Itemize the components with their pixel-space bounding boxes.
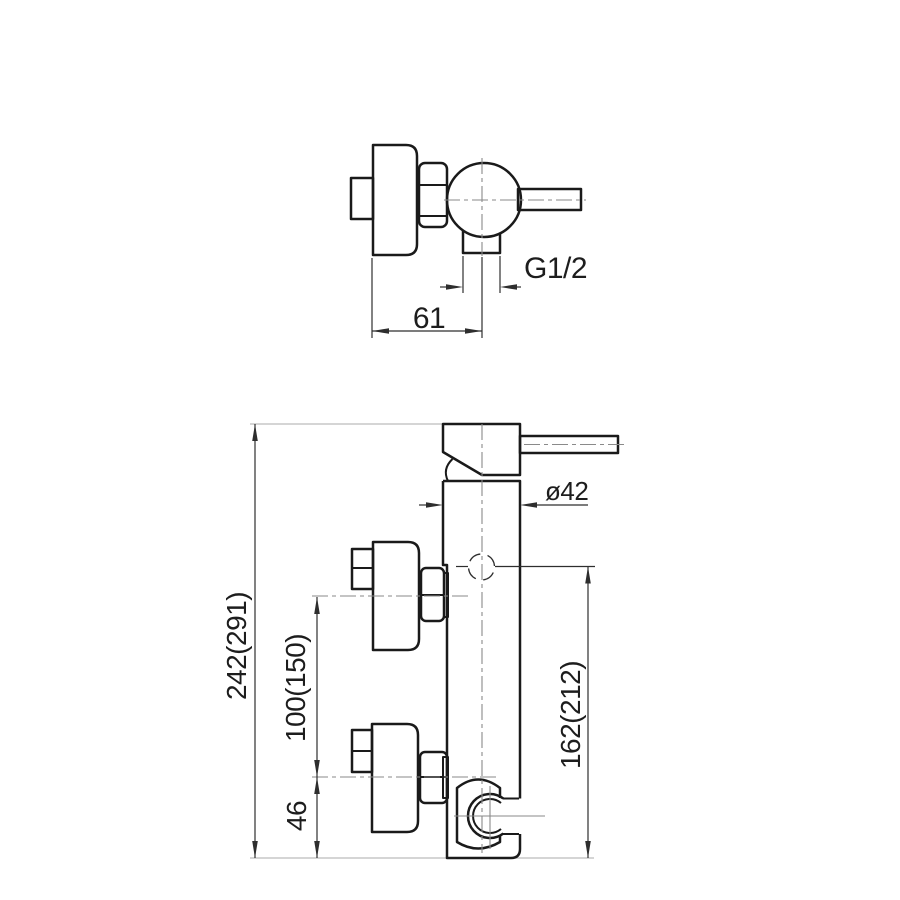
front-lower-inlet-union [352,724,448,832]
dim-total-height: 242(291) [221,424,258,858]
dim-outlet-height: 162(212) [495,567,595,859]
side-hex-nut [419,163,447,227]
dim-label-depth: 61 [413,302,445,335]
dim-label-base-to-inlet: 46 [281,801,312,831]
dim-label-body-diameter: ø42 [545,476,588,506]
dim-label-outlet-height: 162(212) [555,661,586,769]
side-wall-union-endcap [351,178,373,219]
side-escutcheon [373,145,417,255]
lower-escutcheon [372,724,418,832]
dim-depth: 61 [372,257,482,338]
front-shower-holder [454,780,545,850]
dim-base-to-inlet: 46 [281,777,320,858]
dim-label-thread: G1/2 [524,252,587,285]
front-view: 242(291) 100(150) 46 162(212) [221,424,624,858]
dim-label-total-height: 242(291) [221,592,252,700]
dim-inlet-spacing: 100(150) [280,597,320,777]
shower-mixer-technical-drawing: G1/2 61 [0,0,900,900]
technical-drawing-page: G1/2 61 [0,0,900,900]
dim-label-inlet-spacing: 100(150) [280,634,311,742]
dim-thread: G1/2 [440,252,587,293]
front-lever-arc [446,459,453,481]
side-view: G1/2 61 [351,145,587,338]
